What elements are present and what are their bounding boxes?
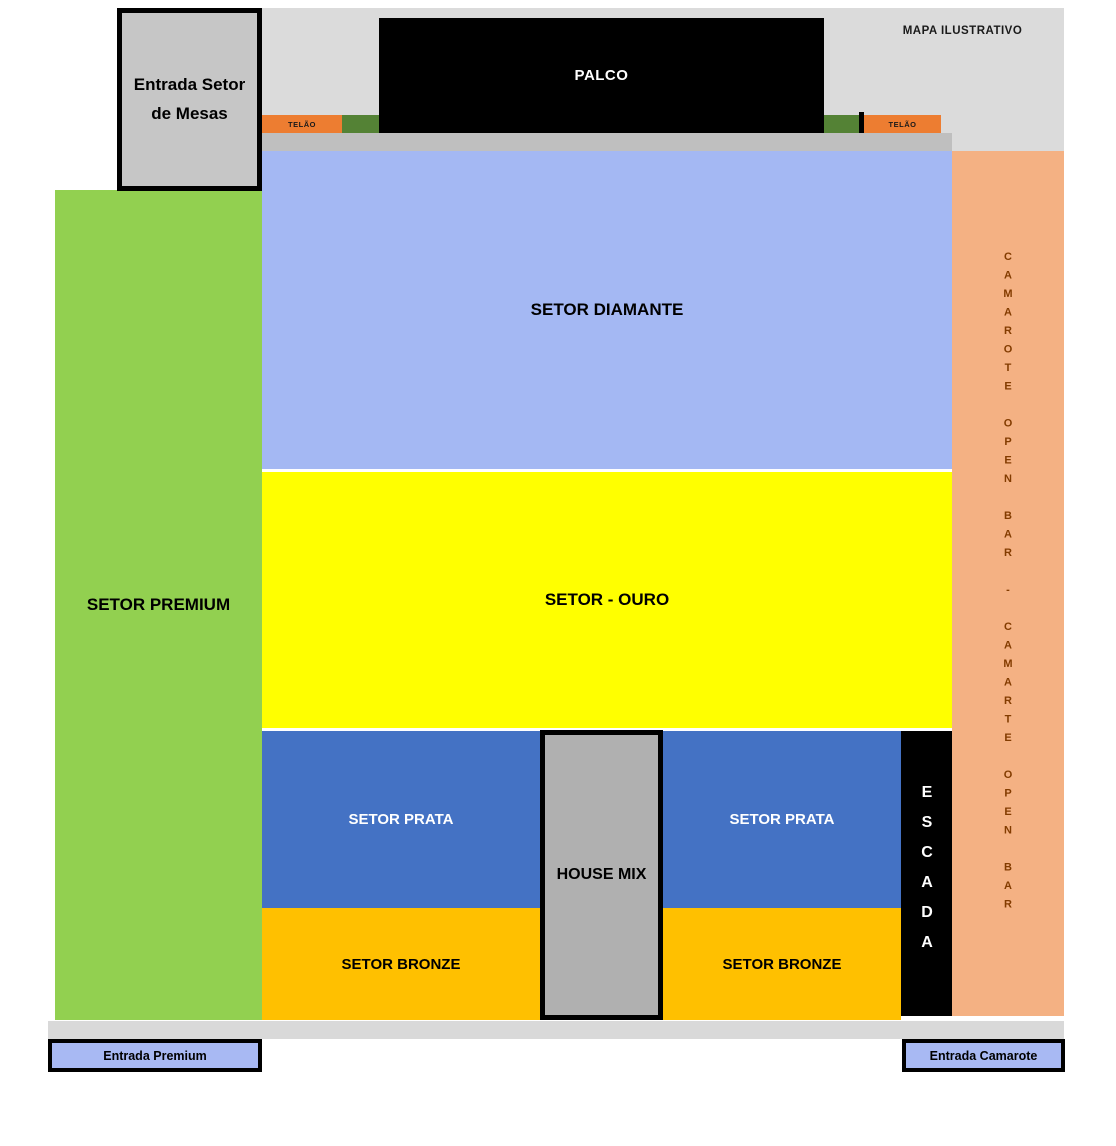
sector-prata-right: SETOR PRATA: [663, 731, 901, 908]
sector-premium: SETOR PREMIUM: [55, 190, 262, 1020]
camarote-open-bar-strip: CAMAROTE OPEN BAR - CAMARTE OPEN BAR: [952, 151, 1064, 1016]
sector-bronze-right: SETOR BRONZE: [663, 908, 901, 1020]
stairs-escada-label: ESCADA: [918, 784, 936, 964]
screen-telao-left: TELÃO: [262, 115, 342, 133]
sector-bronze-left: SETOR BRONZE: [262, 908, 540, 1020]
bottom-walkway-strip: [48, 1021, 1064, 1039]
entrance-camarote: Entrada Camarote: [902, 1039, 1065, 1072]
green-box-right: [824, 115, 859, 133]
sector-prata-left: SETOR PRATA: [262, 731, 540, 908]
front-stage-strip: [262, 133, 952, 151]
map-title: MAPA ILUSTRATIVO: [880, 22, 1045, 40]
entrance-premium: Entrada Premium: [48, 1039, 262, 1072]
stage-palco: PALCO: [379, 18, 824, 133]
house-mix-booth: HOUSE MIX: [540, 730, 663, 1020]
sector-diamante: SETOR DIAMANTE: [262, 151, 952, 469]
stairs-escada: ESCADA: [901, 731, 952, 1016]
venue-map: MAPA ILUSTRATIVO PALCO TELÃO TELÃO Entra…: [0, 0, 1116, 1146]
sector-ouro: SETOR - OURO: [262, 472, 952, 728]
green-box-left: [342, 115, 379, 133]
camarote-open-bar-label: CAMAROTE OPEN BAR - CAMARTE OPEN BAR: [1002, 251, 1014, 917]
entrance-setor-mesas: Entrada Setor de Mesas: [117, 8, 262, 191]
screen-telao-right: TELÃO: [864, 115, 941, 133]
